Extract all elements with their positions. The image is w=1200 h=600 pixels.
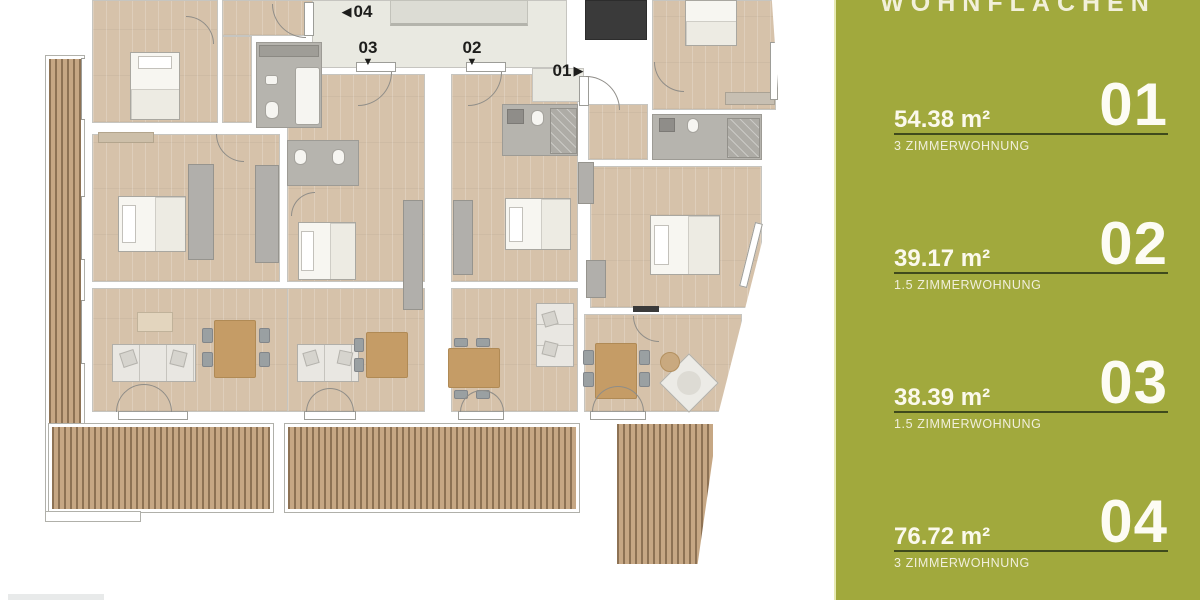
- terrace-door: [590, 411, 646, 420]
- chair: [583, 372, 594, 387]
- marker-unit-01: 01 ▶: [540, 60, 596, 80]
- bed: [650, 215, 720, 275]
- toilet: [332, 149, 345, 165]
- kitchen-unit: [586, 260, 606, 298]
- wardrobe: [578, 162, 594, 204]
- chair: [202, 352, 213, 367]
- chair: [639, 350, 650, 365]
- room-hall-01: [588, 104, 648, 160]
- balcony-step: [45, 511, 141, 522]
- unit-entry-03: 03 38.39 m² 1.5 ZIMMERWOHNUNG: [894, 361, 1168, 449]
- divider: [894, 550, 1168, 552]
- divider: [894, 272, 1168, 274]
- page: ◀ 04 03 ▼ 02 ▼ 01 ▶ WOHNFLÄCHEN 01 54.38…: [0, 0, 1200, 600]
- chair: [259, 352, 270, 367]
- arrow-right-icon: ▶: [573, 64, 583, 77]
- chair: [454, 338, 468, 347]
- bathroom-02: [502, 104, 578, 156]
- unit-type: 1.5 ZIMMERWOHNUNG: [894, 417, 1041, 431]
- kitchen-unit: [453, 200, 473, 275]
- chair: [259, 328, 270, 343]
- bed: [130, 52, 180, 120]
- building: ◀ 04 03 ▼ 02 ▼ 01 ▶: [85, 0, 783, 420]
- washer: [507, 109, 524, 124]
- chair: [354, 338, 364, 352]
- dining-table: [366, 332, 408, 378]
- marker-unit-02: 02 ▼: [452, 36, 492, 70]
- chair: [476, 338, 490, 347]
- sidebar-title: WOHNFLÄCHEN: [836, 0, 1200, 18]
- sink: [294, 149, 307, 165]
- bathtub: [295, 67, 320, 125]
- marker-label: 02: [463, 39, 482, 56]
- arrow-down-icon: ▼: [363, 57, 374, 68]
- wardrobe: [188, 164, 214, 260]
- unit-type: 3 ZIMMERWOHNUNG: [894, 139, 1030, 153]
- wood-deck-slats: [288, 427, 576, 509]
- balcony-bottom-1: [48, 423, 274, 513]
- unit-entry-02: 02 39.17 m² 1.5 ZIMMERWOHNUNG: [894, 222, 1168, 310]
- chair: [639, 372, 650, 387]
- shower: [550, 108, 577, 154]
- pouf: [660, 352, 680, 372]
- marker-label: 04: [354, 3, 373, 20]
- unit-type: 1.5 ZIMMERWOHNUNG: [894, 278, 1041, 292]
- bed: [685, 0, 737, 46]
- balcony-bottom-3: [614, 421, 718, 567]
- toilet: [687, 118, 699, 133]
- sink: [265, 75, 278, 85]
- terrace-door: [118, 411, 188, 420]
- toilet: [265, 101, 279, 119]
- sofa: [112, 344, 196, 382]
- bed: [298, 222, 356, 280]
- marker-unit-03: 03 ▼: [348, 36, 388, 70]
- arrow-down-icon: ▼: [467, 57, 478, 68]
- unit-number: 02: [1099, 216, 1168, 272]
- terrace-door: [458, 411, 504, 420]
- shower: [727, 118, 760, 158]
- unit-number: 04: [1099, 494, 1168, 550]
- bed: [118, 196, 186, 252]
- door-threshold: [633, 306, 659, 312]
- washer: [659, 118, 675, 132]
- chair: [202, 328, 213, 343]
- balcony-bottom-2: [284, 423, 580, 513]
- unit-number: 01: [1099, 77, 1168, 133]
- marker-label: 01: [553, 62, 572, 79]
- window: [770, 42, 778, 100]
- wood-deck-slats: [617, 424, 713, 564]
- unit-area: 39.17 m²: [894, 245, 990, 273]
- divider: [894, 133, 1168, 135]
- stair-landing: [390, 0, 528, 26]
- unit-area: 54.38 m²: [894, 106, 990, 134]
- toilet: [531, 110, 544, 126]
- coffee-table: [137, 312, 173, 332]
- sofa: [536, 303, 574, 367]
- room-hall-04: [222, 36, 252, 123]
- door-arc: [586, 76, 620, 110]
- bathroom-03: [287, 140, 359, 186]
- bath-counter: [259, 45, 319, 57]
- unit-entry-04: 04 76.72 m² 3 ZIMMERWOHNUNG: [894, 500, 1168, 588]
- sideboard: [725, 92, 775, 105]
- terrace-door: [304, 411, 356, 420]
- sofa: [297, 344, 359, 382]
- unit-area: 38.39 m²: [894, 384, 990, 412]
- unit-area: 76.72 m²: [894, 523, 990, 551]
- bed: [505, 198, 571, 250]
- chair: [583, 350, 594, 365]
- unit-type: 3 ZIMMERWOHNUNG: [894, 556, 1030, 570]
- marker-label: 03: [359, 39, 378, 56]
- dining-table: [448, 348, 500, 388]
- unit-entry-01: 01 54.38 m² 3 ZIMMERWOHNUNG: [894, 83, 1168, 171]
- bathroom-04: [256, 42, 322, 128]
- wood-deck-slats: [52, 427, 270, 509]
- elevator-shaft: [585, 0, 647, 40]
- unit-number: 03: [1099, 355, 1168, 411]
- sidebar-wohnflaechen: WOHNFLÄCHEN 01 54.38 m² 3 ZIMMERWOHNUNG …: [834, 0, 1200, 600]
- kitchen-unit: [403, 200, 423, 310]
- sideboard: [98, 132, 154, 143]
- dining-table: [214, 320, 256, 378]
- divider: [894, 411, 1168, 413]
- cropped-watermark: [8, 594, 104, 600]
- chair: [354, 358, 364, 372]
- arrow-left-icon: ◀: [342, 5, 352, 18]
- wardrobe: [255, 165, 279, 263]
- floor-plan: ◀ 04 03 ▼ 02 ▼ 01 ▶: [0, 0, 840, 600]
- bathroom-01: [652, 114, 762, 160]
- marker-unit-04: ◀ 04: [325, 2, 389, 20]
